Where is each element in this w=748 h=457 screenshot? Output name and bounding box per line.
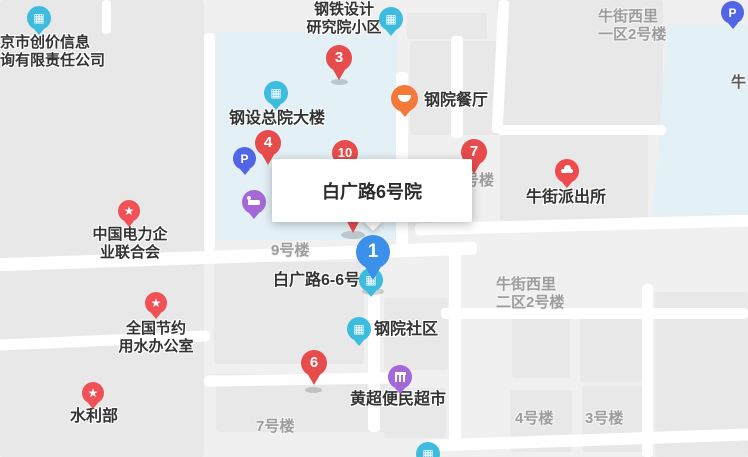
building-icon: ▦	[422, 448, 433, 457]
star-icon: ★	[151, 297, 162, 309]
pin-3[interactable]: 3	[326, 45, 352, 71]
map-block	[580, 314, 642, 382]
parking-icon: P	[240, 153, 248, 165]
highlight-zone-east	[652, 24, 748, 228]
pin-6[interactable]: 6	[301, 350, 327, 376]
map-block	[512, 316, 570, 378]
area-label-building-3: 3号楼	[585, 410, 623, 428]
poi-marker-ministry-water[interactable]: ★	[82, 382, 104, 404]
area-label-niujie-yiqu: 牛街西里 一区2号楼	[598, 8, 682, 44]
info-box[interactable]: 白广路6号院	[272, 159, 472, 222]
poi-label-community: 钢院社区	[374, 320, 438, 339]
road	[441, 308, 748, 319]
map-canvas[interactable]: 牛街西里 一区2号楼 牛 9号楼 号楼 牛街西里 二区2号楼 7号楼 4号楼 3…	[0, 0, 748, 457]
building-icon: ▦	[270, 87, 281, 99]
star-icon: ★	[88, 387, 99, 399]
poi-label-restaurant: 钢院餐厅	[424, 91, 488, 110]
poi-marker-police-station[interactable]	[555, 159, 579, 183]
building-icon: ▦	[33, 12, 44, 24]
poi-marker-supermarket[interactable]	[388, 365, 412, 389]
area-label-niujie-erqu: 牛街西里 二区2号楼	[496, 276, 574, 312]
poi-label-water-saving-office: 全国节约 用水办公室	[116, 320, 196, 356]
map-block	[407, 13, 487, 39]
poi-marker-bj-chuangjia[interactable]: ▦	[27, 6, 51, 30]
road	[451, 36, 463, 138]
poi-label-baiguanglu-6-6: 白广路6-6号	[273, 271, 360, 290]
star-icon: ★	[124, 205, 135, 217]
poi-marker-community[interactable]: ▦	[347, 317, 371, 341]
police-cap-icon	[561, 169, 573, 173]
poi-marker-electricity-council[interactable]: ★	[118, 200, 140, 222]
poi-label-police-station: 牛街派出所	[526, 188, 606, 207]
road	[498, 125, 666, 135]
poi-label-bj-chuangjia: 京市创价信息 询有限责任公司	[0, 34, 105, 70]
restaurant-icon	[398, 95, 411, 102]
pin-1[interactable]: 1	[356, 235, 390, 269]
shop-icon	[395, 372, 406, 382]
road	[449, 252, 461, 444]
parking-icon: P	[728, 7, 736, 19]
building-icon: ▦	[385, 13, 396, 25]
area-label-building-9: 9号楼	[271, 242, 309, 260]
poi-label-electricity-council: 中国电力企 业联合会	[88, 226, 172, 262]
poi-marker-water-saving-office[interactable]: ★	[145, 292, 167, 314]
pin-4[interactable]: 4	[255, 130, 281, 156]
poi-label-gangshe: 钢设总院大楼	[229, 109, 325, 128]
area-label-niu-street: 牛	[731, 74, 746, 92]
parking-marker-west[interactable]: P	[233, 147, 256, 170]
hotel-marker[interactable]	[242, 190, 266, 214]
area-label-building-4: 4号楼	[515, 410, 553, 428]
poi-label-ministry-water: 水利部	[70, 407, 118, 426]
poi-marker-restaurant[interactable]	[391, 85, 418, 112]
building-icon: ▦	[353, 323, 364, 335]
poi-marker-gangshe[interactable]: ▦	[264, 81, 288, 105]
poi-marker-steel-design[interactable]: ▦	[379, 7, 403, 31]
area-label-building-7: 7号楼	[256, 418, 294, 436]
bed-icon	[248, 200, 260, 205]
parking-marker-northeast[interactable]: P	[721, 1, 744, 24]
pin-shadow	[305, 387, 322, 393]
road	[102, 0, 111, 34]
poi-label-steel-design: 钢铁设计 研究院小区	[296, 1, 392, 37]
road	[204, 33, 215, 251]
